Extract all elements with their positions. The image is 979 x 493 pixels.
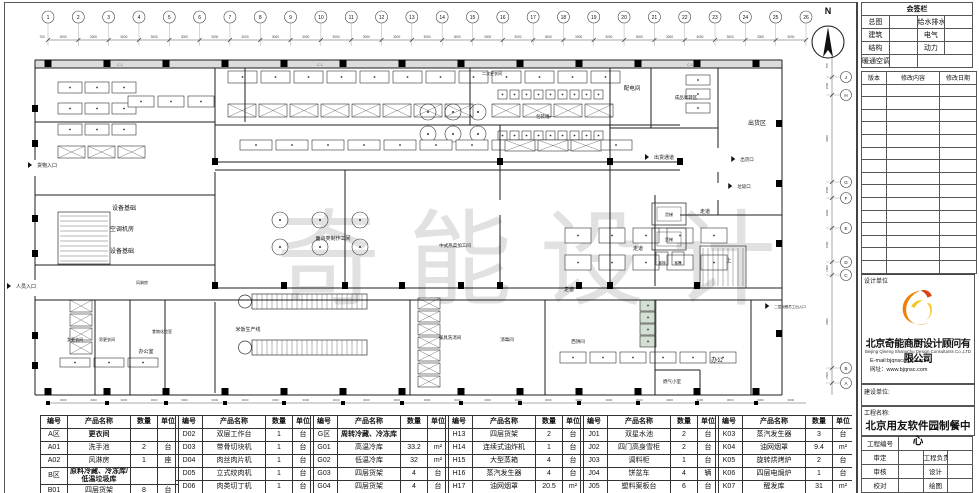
equip-id: A02 — [41, 455, 68, 468]
equipment-row: J05塑料案板台6台 — [581, 481, 719, 493]
revision-blank — [862, 260, 887, 273]
dimension-label: 3000 — [787, 398, 794, 402]
equip-name: 洗手池 — [68, 442, 131, 455]
revision-blank — [887, 210, 940, 223]
equip-name: 蒸汽发生器 — [473, 468, 536, 481]
equip-id: D04 — [176, 455, 203, 468]
equip-id: K03 — [716, 429, 743, 442]
sign-blank — [945, 16, 973, 29]
equip-header: 编号 — [311, 416, 338, 429]
equip-header: 数量 — [806, 416, 833, 429]
grid-number: 15 — [470, 15, 476, 21]
room-label: 食物化验室 — [152, 328, 172, 334]
dimension-label: 3000 — [302, 398, 309, 402]
revision-blank — [887, 134, 940, 147]
room-label: 办公室 — [138, 348, 153, 355]
dimension-label: 3000 — [575, 35, 582, 39]
equip-header: 编号 — [581, 416, 608, 429]
sign-blank — [889, 42, 917, 55]
room-label: 垃圾口 — [737, 183, 751, 190]
equip-id: G04 — [311, 481, 338, 493]
equip-name: 肉丝肉片机 — [203, 455, 266, 468]
revision-blank — [940, 210, 977, 223]
room-label: 走道 — [700, 208, 710, 215]
revision-blank — [940, 109, 977, 122]
equipment-row: H15大型蒸箱4台 — [446, 455, 584, 468]
grid-number: 22 — [682, 15, 688, 21]
room-label: 设备基础 — [110, 247, 134, 255]
room-label: 二次更衣间 — [482, 70, 502, 76]
approval-label: 审定 — [862, 450, 899, 464]
drawing-sheet: { "plan": { "north_label": "N", "waterma… — [0, 0, 979, 493]
grid-number: 8 — [259, 15, 262, 21]
equip-header: 数量 — [671, 416, 698, 429]
dimension-label: 3000 — [484, 35, 491, 39]
dimension-label: 3000 — [636, 398, 643, 402]
revision-blank — [940, 223, 977, 236]
discipline-label: 电气 — [917, 29, 945, 42]
room-label: 空调机房 — [110, 225, 134, 233]
beam-label: C-1 — [317, 63, 323, 67]
revision-blank — [887, 84, 940, 97]
approval-blank — [899, 450, 924, 464]
discipline-label: 动力 — [917, 42, 945, 55]
equip-header: 产品名称 — [743, 416, 806, 429]
room-label: 餐具洗消间 — [439, 334, 462, 341]
room-label: 货梯 — [665, 211, 673, 217]
equip-qty — [401, 429, 428, 442]
equip-name: 双星水池 — [608, 429, 671, 442]
dimension-label: 3000 — [120, 398, 127, 402]
equip-name: 带骨切块机 — [203, 442, 266, 455]
room-label: 成品周转区 — [675, 94, 698, 101]
room-label: 出货区 — [748, 119, 766, 127]
company-logo-icon — [892, 285, 944, 336]
dimension-label: 3000 — [272, 398, 279, 402]
grid-number: 17 — [530, 15, 536, 21]
grid-letter: J — [845, 75, 847, 80]
equipment-schedule: 编号产品名称数量单位A区更衣间A01洗手池2台A02风淋房1座B区原料冷藏、冷冻… — [40, 415, 852, 493]
room-label: 办公 — [711, 356, 723, 364]
equip-id: K05 — [716, 455, 743, 468]
revision-blank — [862, 197, 887, 210]
dimension-label: 3000 — [90, 35, 97, 39]
equip-qty: 31 — [806, 481, 833, 493]
equip-name: 肉类切丁机 — [203, 481, 266, 493]
equip-qty: 8 — [131, 485, 158, 493]
equip-id: J04 — [581, 468, 608, 481]
room-label: 包装线一 — [536, 113, 554, 120]
dimension-label: 3000 — [363, 398, 370, 402]
grid-letter: D — [844, 260, 848, 265]
equip-id: H14 — [446, 442, 473, 455]
dimension-label: 3000 — [727, 35, 734, 39]
equip-qty: 1 — [536, 442, 563, 455]
revision-blank — [887, 260, 940, 273]
grid-number: 7 — [229, 15, 232, 21]
grid-number: 13 — [409, 15, 415, 21]
grid-number: 26 — [803, 15, 809, 21]
dimension-label: 3000 — [211, 35, 218, 39]
revision-blank — [862, 122, 887, 135]
project-name: 北京用友软件园制餐中心 — [862, 418, 974, 448]
equip-qty: 9.4 — [806, 442, 833, 455]
equipment-table-3: 编号产品名称数量单位G区周转冷藏、冷冻库G01高温冷库33.2m²G02低温冷库… — [310, 415, 449, 493]
equip-id: H16 — [446, 468, 473, 481]
grid-number: 16 — [500, 15, 506, 21]
equip-header: 产品名称 — [203, 416, 266, 429]
dimension-label: 3000 — [454, 398, 461, 402]
equip-id: J01 — [581, 429, 608, 442]
equip-qty: 1 — [266, 468, 293, 481]
equipment-table-5: 编号产品名称数量单位J01双星水池2台J02四门高身雪柜2台J03调料柜1台J0… — [580, 415, 719, 493]
company-name-en: Beijing Qineng Shangchu Design Consultan… — [862, 349, 974, 354]
dimension-label: 3000 — [545, 35, 552, 39]
equip-header: 数量 — [536, 416, 563, 429]
equip-qty: 2 — [131, 442, 158, 455]
equip-id: K07 — [716, 481, 743, 493]
equipment-row: D05立式绞肉机1台 — [176, 468, 314, 481]
equipment-row: K05旋转烘烤炉2台 — [716, 455, 853, 468]
equip-qty: 4 — [401, 481, 428, 493]
dimension-label: 3000 — [272, 35, 279, 39]
dimension-label: 1500 — [825, 372, 829, 379]
revision-blank — [862, 235, 887, 248]
grid-number: 21 — [652, 15, 658, 21]
room-label: 设备基础 — [112, 204, 136, 212]
grid-number: 24 — [743, 15, 749, 21]
dimension-label: 3000 — [393, 398, 400, 402]
approval-blank — [899, 464, 924, 478]
equip-name: 大型蒸箱 — [473, 455, 536, 468]
grid-number: 9 — [289, 15, 292, 21]
design-unit-label: 设计单位 — [864, 276, 888, 285]
room-label: 出货口 — [740, 156, 754, 163]
room-label: 出货通道 — [654, 154, 674, 161]
room-label: 燃气小室 — [663, 378, 681, 385]
grid-number: 12 — [379, 15, 385, 21]
dimension-label: 1500 — [825, 186, 829, 193]
grid-number: 20 — [621, 15, 627, 21]
dimension-label: 3000 — [515, 398, 522, 402]
dimension-label: 3000 — [727, 398, 734, 402]
equip-name: 四层货架 — [473, 429, 536, 442]
equip-unit: 台 — [833, 455, 853, 468]
project-name-label: 工程名称: — [864, 408, 890, 417]
room-label: 配电间 — [624, 84, 641, 92]
sign-blank — [945, 29, 973, 42]
sign-table-title: 会签栏 — [862, 3, 973, 16]
equip-qty: 2 — [806, 455, 833, 468]
dimension-label: 3000 — [393, 35, 400, 39]
equipment-row: G02低温冷库32m² — [311, 455, 449, 468]
revision-blank — [862, 210, 887, 223]
equipment-table-1: 编号产品名称数量单位A区更衣间A01洗手池2台A02风淋房1座B区原料冷藏、冷冻… — [40, 415, 179, 493]
dimension-label: 1500 — [825, 241, 829, 248]
revision-header: 修改日期 — [940, 72, 977, 85]
revision-blank — [887, 109, 940, 122]
equipment-row: B区原料冷藏、冷冻库/低温垃圾库 — [41, 468, 179, 485]
grid-letter: H — [844, 93, 847, 98]
revision-blank — [940, 248, 977, 261]
dimension-label: 3000 — [242, 35, 249, 39]
equip-id: D05 — [176, 468, 203, 481]
revision-blank — [862, 223, 887, 236]
dimension-label: 3000 — [514, 35, 521, 39]
equip-qty: 32 — [401, 455, 428, 468]
dimension-label: 9000 — [825, 318, 829, 325]
equip-qty — [131, 429, 158, 442]
revision-header: 版本 — [862, 72, 887, 85]
equip-qty: 1 — [131, 455, 158, 468]
room-label: 西饼间 — [571, 338, 585, 345]
revision-blank — [940, 97, 977, 110]
sign-table: 会签栏总图给水排水建筑电气结构动力暖通空调 — [861, 2, 973, 68]
equipment-row: D06肉类切丁机1台 — [176, 481, 314, 493]
equip-header: 数量 — [401, 416, 428, 429]
equip-unit: m² — [833, 442, 853, 455]
equip-header: 产品名称 — [338, 416, 401, 429]
approval-blank — [948, 464, 973, 478]
equipment-row: K03蒸汽发生器3台 — [716, 429, 853, 442]
dimension-label: 3000 — [454, 35, 461, 39]
revision-blank — [887, 223, 940, 236]
dimension-label: 3000 — [333, 398, 340, 402]
dimension-label: 1500 — [825, 265, 829, 272]
equipment-row: B01四层货架8台 — [41, 485, 179, 493]
equip-id: H17 — [446, 481, 473, 493]
grid-number: 1 — [47, 15, 50, 21]
equip-id: D06 — [176, 481, 203, 493]
dimension-label: 3000 — [484, 398, 491, 402]
room-label: 消毒间 — [500, 336, 514, 343]
revision-blank — [862, 97, 887, 110]
equipment-row: G区周转冷藏、冷冻库 — [311, 429, 449, 442]
project-name-box: 工程名称: 北京用友软件园制餐中心 — [861, 406, 975, 436]
grid-letter: E — [844, 226, 847, 231]
equip-qty: 6 — [671, 481, 698, 493]
dimension-label: 3000 — [151, 398, 158, 402]
equip-header: 产品名称 — [608, 416, 671, 429]
equipment-row: D04肉丝肉片机1台 — [176, 455, 314, 468]
approval-blank — [948, 450, 973, 464]
equip-header: 数量 — [131, 416, 158, 429]
equip-name: 醒发库 — [743, 481, 806, 493]
dimension-label: 3000 — [120, 35, 127, 39]
dimension-label: 3000 — [545, 398, 552, 402]
equip-qty: 4 — [671, 468, 698, 481]
sign-blank — [917, 55, 973, 68]
title-block: 会签栏总图给水排水建筑电气结构动力暖通空调 版本修改内容修改日期 设计单位 北京… — [856, 2, 977, 493]
grid-number: 19 — [591, 15, 597, 21]
client-label: 建设单位: — [864, 387, 890, 396]
grid-number: 4 — [138, 15, 141, 21]
equip-id: G03 — [311, 468, 338, 481]
revision-table: 版本修改内容修改日期 — [861, 71, 977, 274]
dimension-label: 3000 — [666, 35, 673, 39]
equipment-row: J01双星水池2台 — [581, 429, 719, 442]
room-label: 客梯 — [659, 260, 667, 265]
equipment-row: J04饼盆车4辆 — [581, 468, 719, 481]
equip-qty: 4 — [536, 468, 563, 481]
revision-blank — [940, 260, 977, 273]
approval-blank — [899, 478, 924, 492]
revision-blank — [887, 197, 940, 210]
room-label: 女更衣间 — [67, 336, 83, 342]
discipline-label: 暖通空调 — [862, 55, 890, 68]
beam-label: C-1 — [687, 63, 693, 67]
revision-blank — [940, 172, 977, 185]
equip-qty: 1 — [266, 481, 293, 493]
equip-qty: 1 — [266, 455, 293, 468]
equip-qty: 1 — [806, 468, 833, 481]
equip-qty: 2 — [671, 442, 698, 455]
equipment-row: K06四层电焗炉1台 — [716, 468, 853, 481]
dimension-label: 3000 — [60, 35, 67, 39]
equipment-row: H17油网烟罩20.5m² — [446, 481, 584, 493]
equip-qty: 2 — [671, 429, 698, 442]
equip-name: 塑料案板台 — [608, 481, 671, 493]
revision-blank — [862, 248, 887, 261]
equip-name: 双层工作台 — [203, 429, 266, 442]
equip-id: K04 — [716, 442, 743, 455]
equip-unit: 台 — [833, 429, 853, 442]
equip-qty: 4 — [536, 455, 563, 468]
equip-name: 蒸汽发生器 — [743, 429, 806, 442]
equipment-table-6: 编号产品名称数量单位K03蒸汽发生器3台K04油网烟罩9.4m²K05旋转烘烤炉… — [715, 415, 852, 493]
revision-blank — [862, 109, 887, 122]
revision-blank — [940, 147, 977, 160]
equip-header: 产品名称 — [473, 416, 536, 429]
equip-header: 编号 — [716, 416, 743, 429]
sign-blank — [889, 55, 917, 68]
equipment-row: D03带骨切块机1台 — [176, 442, 314, 455]
equipment-row: G01高温冷库33.2m² — [311, 442, 449, 455]
equip-header: 产品名称 — [68, 416, 131, 429]
room-label: 货梯 — [665, 236, 673, 242]
revision-blank — [940, 160, 977, 173]
grid-number: 6 — [198, 15, 201, 21]
revision-blank — [887, 147, 940, 160]
equip-name: 高温冷库 — [338, 442, 401, 455]
revision-blank — [940, 235, 977, 248]
equipment-table-2: 编号产品名称数量单位D02双层工作台1台D03带骨切块机1台D04肉丝肉片机1台… — [175, 415, 314, 493]
equip-name: 四层货架 — [338, 481, 401, 493]
dimension-label: 3000 — [181, 398, 188, 402]
equip-id: A区 — [41, 429, 68, 442]
grid-number: 25 — [773, 15, 779, 21]
equip-name: 油网烟罩 — [473, 481, 536, 493]
equipment-row: A02风淋房1座 — [41, 455, 179, 468]
revision-blank — [940, 185, 977, 198]
equipment-row: H13四层货架2台 — [446, 429, 584, 442]
dimension-label: 3000 — [605, 35, 612, 39]
discipline-label: 总图 — [862, 16, 890, 29]
equip-id: K06 — [716, 468, 743, 481]
revision-blank — [887, 160, 940, 173]
dimension-label: 3000 — [363, 35, 370, 39]
room-label: 客梯 — [675, 260, 683, 265]
revision-blank — [887, 122, 940, 135]
dimension-label: 3000 — [60, 398, 67, 402]
grid-number: 23 — [712, 15, 718, 21]
equipment-row: J03调料柜1台 — [581, 455, 719, 468]
grid-number: 5 — [168, 15, 171, 21]
equipment-table-4: 编号产品名称数量单位H13四层货架2台H14连续式油炸机1台H15大型蒸箱4台H… — [445, 415, 584, 493]
equip-name: 四层货架 — [68, 485, 131, 493]
dimension-label: 3000 — [575, 398, 582, 402]
equip-name: 旋转烘烤炉 — [743, 455, 806, 468]
grid-letter: F — [845, 196, 848, 201]
revision-blank — [940, 197, 977, 210]
equipment-row: J02四门高身雪柜2台 — [581, 442, 719, 455]
grid-letter: A — [844, 381, 847, 386]
sign-blank — [945, 42, 973, 55]
equip-qty: 1 — [266, 429, 293, 442]
revision-header: 修改内容 — [887, 72, 940, 85]
discipline-label: 建筑 — [862, 29, 890, 42]
equip-id: G区 — [311, 429, 338, 442]
approval-label: 审核 — [862, 464, 899, 478]
dimension-label: 3000 — [757, 35, 764, 39]
dimension-label: 1500 — [825, 82, 829, 89]
discipline-label: 结构 — [862, 42, 890, 55]
equip-name: 四门高身雪柜 — [608, 442, 671, 455]
grid-letter: B — [844, 366, 847, 371]
revision-blank — [862, 134, 887, 147]
grid-number: 18 — [561, 15, 567, 21]
discipline-label: 给水排水 — [917, 16, 945, 29]
revision-blank — [862, 147, 887, 160]
room-label: 人员入口 — [16, 284, 36, 290]
client-box: 建设单位: — [861, 384, 975, 406]
revision-blank — [940, 122, 977, 135]
equip-qty: 3 — [806, 429, 833, 442]
dimension-label: 3000 — [302, 35, 309, 39]
equip-id: D03 — [176, 442, 203, 455]
equip-header: 编号 — [176, 416, 203, 429]
dimension-label: 3000 — [757, 398, 764, 402]
company-email: E-mail:bjqnsc@163.com — [870, 357, 930, 366]
equip-id: A01 — [41, 442, 68, 455]
dimension-label: 750 — [825, 63, 829, 68]
revision-blank — [862, 160, 887, 173]
equip-name: 低温冷库 — [338, 455, 401, 468]
room-label: 米饭生产线 — [235, 326, 260, 333]
revision-blank — [940, 134, 977, 147]
equip-id: J03 — [581, 455, 608, 468]
room-label: 二层制餐员工出入口 — [774, 304, 806, 309]
equipment-row: H14连续式油炸机1台 — [446, 442, 584, 455]
grid-letter: C — [844, 273, 848, 278]
equip-qty: 1 — [671, 455, 698, 468]
grid-letter: G — [844, 180, 848, 185]
equip-name: 饼盆车 — [608, 468, 671, 481]
equip-header: 编号 — [41, 416, 68, 429]
revision-blank — [862, 84, 887, 97]
revision-blank — [887, 248, 940, 261]
equip-name: 调料柜 — [608, 455, 671, 468]
sign-blank — [889, 16, 917, 29]
revision-blank — [887, 185, 940, 198]
approval-label: 绘图 — [923, 478, 948, 492]
dimension-label: 9000 — [825, 135, 829, 142]
dimension-label: 3000 — [787, 35, 794, 39]
room-label: 男更衣间 — [99, 336, 115, 342]
dimension-label: 700 — [39, 35, 45, 39]
dimension-label: 3000 — [424, 398, 431, 402]
room-label: 中式热菜加工间 — [439, 242, 471, 249]
